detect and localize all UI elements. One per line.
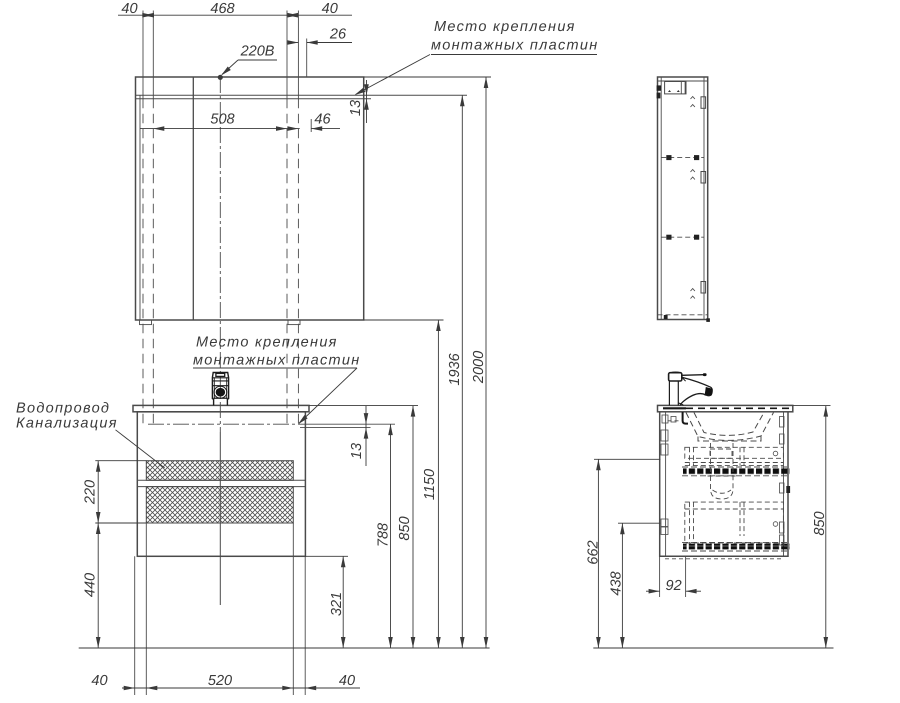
svg-text:13: 13 <box>349 443 365 459</box>
svg-text:13: 13 <box>348 100 364 116</box>
svg-text:40: 40 <box>91 673 107 689</box>
svg-text:468: 468 <box>210 1 234 17</box>
svg-text:46: 46 <box>314 112 331 128</box>
svg-text:1150: 1150 <box>422 469 438 500</box>
svg-text:26: 26 <box>329 27 347 43</box>
svg-text:92: 92 <box>666 578 682 594</box>
svg-text:40: 40 <box>322 1 338 17</box>
svg-text:40: 40 <box>339 673 355 689</box>
svg-text:монтажных пластин: монтажных пластин <box>193 353 361 369</box>
svg-text:40: 40 <box>121 1 137 17</box>
svg-text:788: 788 <box>376 523 392 547</box>
svg-text:Канализация: Канализация <box>16 416 118 432</box>
svg-text:220В: 220В <box>240 44 275 60</box>
svg-text:440: 440 <box>83 573 99 597</box>
svg-text:Место крепления: Место крепления <box>434 19 576 35</box>
svg-text:Водопровод: Водопровод <box>16 401 110 417</box>
svg-text:1936: 1936 <box>447 352 463 385</box>
svg-text:520: 520 <box>208 673 232 689</box>
svg-text:Место крепления: Место крепления <box>196 335 338 351</box>
svg-text:508: 508 <box>210 112 234 128</box>
svg-text:662: 662 <box>586 540 602 564</box>
svg-text:монтажных пластин: монтажных пластин <box>431 38 599 54</box>
svg-text:321: 321 <box>329 592 345 616</box>
svg-text:220: 220 <box>83 480 99 505</box>
svg-text:2000: 2000 <box>471 351 487 384</box>
svg-text:850: 850 <box>397 516 413 540</box>
